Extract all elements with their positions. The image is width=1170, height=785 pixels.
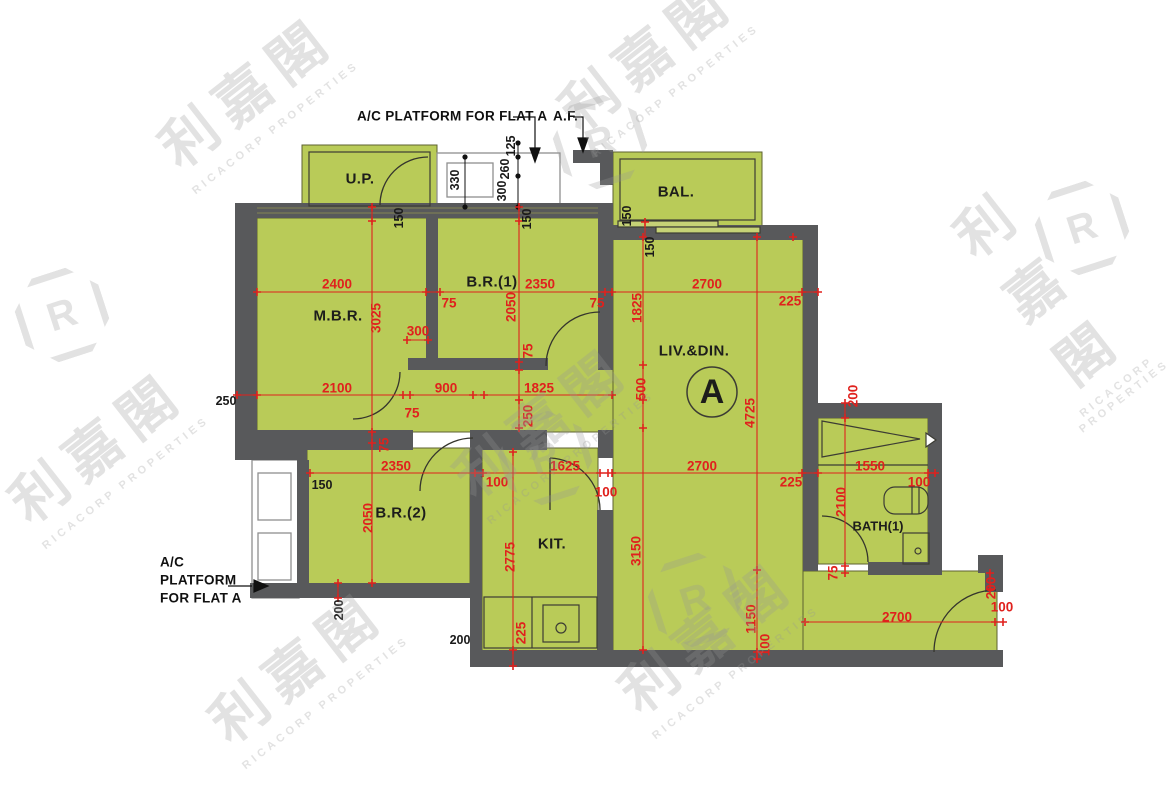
floor-living bbox=[613, 227, 803, 652]
balcony-slider-2 bbox=[656, 227, 760, 233]
floor-up bbox=[302, 145, 437, 213]
ac-unit-top bbox=[447, 163, 493, 197]
af-leader bbox=[573, 117, 583, 138]
ac-unit-left-2 bbox=[258, 533, 291, 580]
af-feature-2 bbox=[600, 150, 613, 185]
ac-unit-left-1 bbox=[258, 473, 291, 520]
floorplan-canvas: A/C PLATFORM FOR FLAT AA.F.A/CPLATFORMFO… bbox=[0, 0, 1170, 785]
floorplan-drawing bbox=[0, 0, 1170, 785]
floor-foyer bbox=[803, 571, 997, 652]
floor-balcony bbox=[613, 152, 762, 228]
af-arrow bbox=[578, 138, 588, 152]
balcony-slider-1 bbox=[618, 221, 718, 227]
floor-kitchen bbox=[482, 448, 598, 652]
floor-br2 bbox=[307, 448, 470, 585]
